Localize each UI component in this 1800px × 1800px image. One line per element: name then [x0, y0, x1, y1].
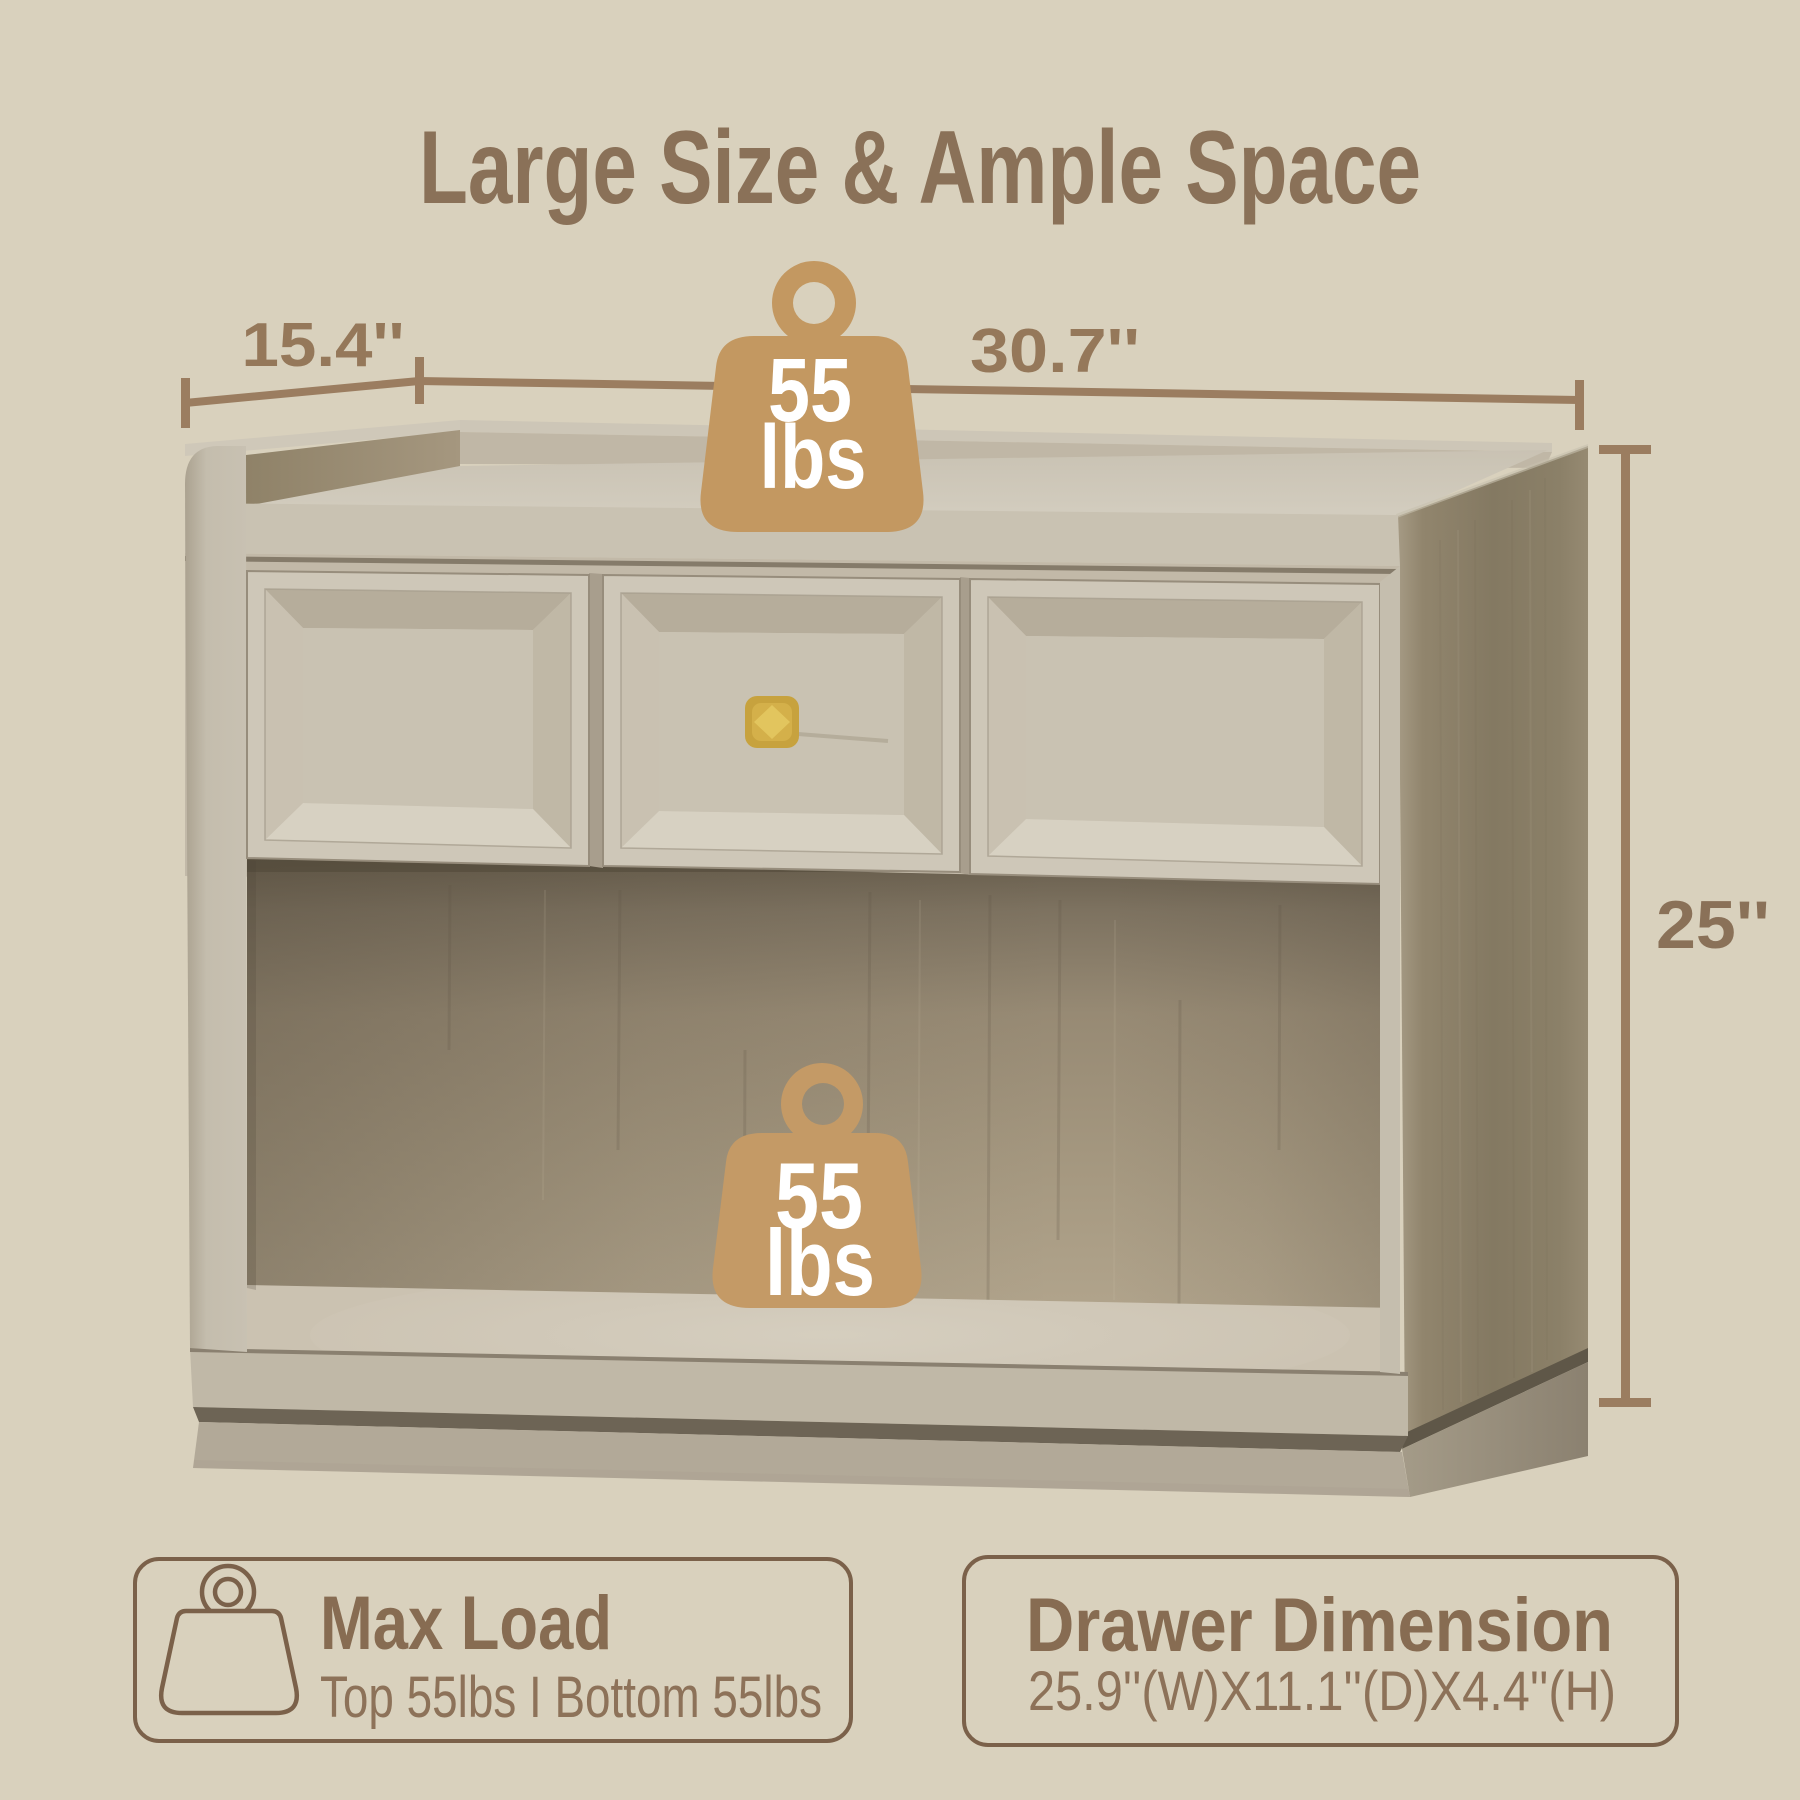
svg-text:30.7'': 30.7'' — [970, 317, 1140, 386]
svg-text:Top 55lbs I Bottom 55lbs: Top 55lbs I Bottom 55lbs — [320, 1665, 822, 1730]
svg-text:lbs: lbs — [760, 408, 867, 508]
svg-text:Large Size & Ample Space: Large Size & Ample Space — [419, 110, 1421, 226]
svg-text:25.9''(W)X11.1''(D)X4.4''(H): 25.9''(W)X11.1''(D)X4.4''(H) — [1028, 1659, 1616, 1722]
svg-text:Drawer Dimension: Drawer Dimension — [1026, 1583, 1613, 1668]
svg-text:lbs: lbs — [765, 1210, 875, 1315]
svg-text:Max Load: Max Load — [320, 1581, 612, 1666]
svg-text:15.4'': 15.4'' — [242, 311, 405, 380]
svg-text:25'': 25'' — [1656, 887, 1770, 963]
